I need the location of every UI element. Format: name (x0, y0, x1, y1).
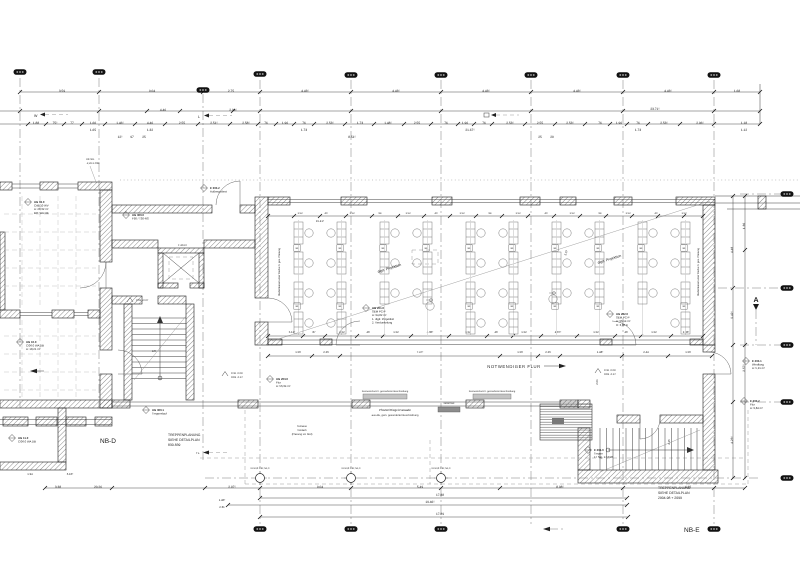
chair (649, 229, 657, 237)
annotation-text: FFB -0.08 (604, 369, 616, 372)
room-stamp-line: A: 18,21 m² (26, 347, 41, 351)
dim-value: 4.46 (160, 108, 166, 112)
dim-value: 1.36 (742, 223, 746, 229)
dim-value: 12⁵ (118, 135, 124, 139)
chair (649, 259, 657, 267)
dim-value: 21.67⁵ (465, 128, 475, 132)
dim-value: 2.96⁵ (229, 108, 237, 112)
dim-value: 2.53⁵ (660, 121, 668, 125)
chair (499, 259, 507, 267)
dim-value: 5.07 (563, 249, 569, 256)
dim-value: 94 (379, 212, 382, 215)
column-circle (437, 474, 446, 483)
dim-value: 2.55 (414, 121, 420, 125)
dim-value: 1.32 (147, 128, 153, 132)
dim-value: 4.46 (147, 121, 153, 125)
dim-value: 6.10⁵ (67, 472, 74, 476)
dim-value: 2.01 (595, 379, 599, 385)
chair (327, 229, 335, 237)
annotation-text: Medienkanal unter Decke lt. ges. Planung (697, 247, 700, 296)
dim-value: 17.89 (436, 512, 444, 516)
chair (671, 259, 679, 267)
chair (305, 259, 313, 267)
section-letter: A (753, 297, 758, 304)
room-stamp-line: Außenpodest (210, 190, 227, 194)
elevator-shaft (158, 248, 204, 288)
chair (563, 289, 571, 297)
dim-value: 1.73 (635, 128, 641, 132)
dim-value: 1.50 (517, 350, 523, 354)
annotation-text: UK Stz. (86, 158, 95, 161)
dim-value: 1.52 (515, 212, 521, 215)
dim-value: 1.52 (569, 212, 575, 215)
dim-value: 3.38 (55, 485, 61, 489)
dim-value: 1.50 (295, 350, 301, 354)
seminar-desks (294, 220, 690, 336)
dim-value: 15.41⁵ (316, 219, 324, 223)
column-label: FLSt Ø 139,7x4,0 (342, 467, 361, 470)
chair (477, 319, 485, 327)
dim-value: 1.88 (33, 121, 39, 125)
dim-value: 1.65 (90, 128, 96, 132)
dim-value: 1.52 (349, 212, 355, 215)
annotation-text: Terrasse (297, 425, 308, 428)
stair-note-line: TREPPENPLANUNG (658, 486, 691, 490)
annotation-text: Pfosten/Riegel-Fassade (379, 408, 411, 412)
dim-value: 76 (264, 121, 268, 125)
dim-value: 1.50 (685, 350, 691, 354)
dim-value: 20 (550, 135, 554, 139)
chair (391, 229, 399, 237)
dim-value: 40 (545, 212, 548, 215)
annotation-text: Gitterrost (444, 402, 455, 405)
chair (671, 229, 679, 237)
chair (585, 259, 593, 267)
dim-value: 40 (624, 330, 628, 334)
dim-value: 5.49 (417, 485, 423, 489)
annotation-text: W (34, 114, 38, 118)
dim-value: 2.97⁵ (228, 485, 236, 489)
annotation-text: aus Alu, gem. gesonderter Beschreibung (372, 414, 419, 417)
dim-value: 4.07⁵ (555, 330, 562, 334)
dim-value: 4.15 (667, 439, 671, 445)
dim-value: 1.96 (462, 121, 468, 125)
stair-note-line: 2904-98 + 2099 (658, 496, 682, 500)
room-stamp-line: A: 9,84 m² (750, 406, 763, 410)
chair (477, 289, 485, 297)
dim-value: 40 (655, 212, 658, 215)
dim-value: 1.52 (297, 212, 303, 215)
annotation-text: (Planung LH Süd) (292, 433, 313, 436)
dim-value: 1.73 (357, 121, 363, 125)
dim-value: 20.26 (94, 485, 102, 489)
annotation-text: FFB -0.08 (231, 372, 243, 375)
room-stamp-line: BO: WA DB (34, 211, 49, 215)
dim-value: 2.55 (179, 121, 185, 125)
dim-value: 3.59 (59, 89, 65, 93)
canopy-outline (120, 180, 800, 484)
dim-value: 4.43⁵ (573, 89, 581, 93)
dim-value: 4.43⁵ (392, 89, 400, 93)
annotation-text: RFB -0.37 (231, 376, 243, 379)
chair (585, 229, 593, 237)
dim-value: 23.71⁵ (650, 107, 660, 111)
dim-value: 9.04 (149, 89, 155, 93)
dim-value: 1.12 (741, 128, 747, 132)
room-stamps: UG 03.0C4B.10 WVA: 28,32 m²BO: WA DBUG 1… (9, 185, 765, 460)
label-corridor: NOTWENDIGER FLUR (487, 364, 541, 369)
chair (499, 319, 507, 327)
chair (563, 229, 571, 237)
column-circle (347, 474, 356, 483)
grating-area (540, 404, 592, 440)
floor-tags: 8484848484848484848484848484848484 (294, 245, 687, 309)
drawing-svg: A NB-D NB-E NOTWENDIGER FLUR 3.599.042.7… (0, 0, 800, 572)
chair (499, 229, 507, 237)
room-stamp-line: A: 56,34 m² (276, 384, 291, 388)
column-circle (256, 474, 265, 483)
stair-note-line: SIEHE DETAILPLAN (658, 491, 690, 495)
dim-value: 1.52 (459, 212, 465, 215)
dim-value: 2.26 (545, 350, 551, 354)
dim-value: 2.31 (219, 505, 225, 509)
annotation-text: digit. Projektion (597, 254, 622, 265)
dim-value: 1.52 (681, 212, 687, 215)
chair (671, 319, 679, 327)
room-stamp-line: F90 / T30-RS (132, 217, 149, 221)
chair (413, 289, 421, 297)
dim-value: 1.52 (339, 330, 345, 334)
chair (413, 259, 421, 267)
dim-value: 7.47⁵ (417, 350, 424, 354)
dim-value: 76 (598, 121, 602, 125)
dim-value: 1.52 (521, 330, 527, 334)
chair (413, 229, 421, 237)
dim-value: 40 (325, 212, 328, 215)
walls-existing-building (0, 182, 112, 470)
chair (305, 319, 313, 327)
chair (563, 259, 571, 267)
stair-note-line: 830-839 (168, 443, 181, 447)
dim-value: 87 (312, 330, 316, 334)
stairs-nbe (600, 428, 700, 472)
dim-value: 97 (130, 135, 134, 139)
dim-value: 94 (489, 212, 492, 215)
dim-value: 4.23⁵ (730, 436, 734, 444)
dim-value: 2.51⁵ (210, 121, 218, 125)
dim-value: 2.44 (643, 350, 649, 354)
chair (585, 289, 593, 297)
room-stamp-line: Treppenlauf (152, 412, 167, 416)
annotation-text: Vordach (297, 429, 307, 432)
dim-value: 76 (444, 121, 448, 125)
dim-value: 1.52 (651, 330, 657, 334)
dim-value: 2.75 (228, 89, 234, 93)
dim-value: 76 (302, 121, 306, 125)
dimension-chains (0, 90, 762, 519)
dim-value: 1.94 (27, 472, 33, 476)
dim-value: 4.43⁵ (482, 89, 490, 93)
label-nbe: NB-E (684, 527, 700, 534)
facade-columns: FLSt Ø 139,7x4,0FLSt Ø 139,7x4,0FLSt Ø 1… (251, 467, 451, 485)
dim-value: 1.46⁵ (116, 121, 124, 125)
ceiling-grid-dashed (4, 196, 96, 398)
dim-value: 4.48 (730, 247, 734, 253)
room-stamp-line: 2. Verdunkelung (372, 320, 393, 324)
annotation-text: Sonnenschutz lt. gesonderter Beschreibun… (469, 390, 516, 393)
label-nbd: NB-D (100, 438, 116, 445)
chair (305, 289, 313, 297)
annotation-text: digit. Projektion (377, 263, 402, 274)
dim-value: 1.18 (741, 121, 747, 125)
dim-value: 1.40⁵ (219, 498, 226, 502)
column-label: FLSt Ø 139,7x4,0 (251, 467, 270, 470)
chair (649, 289, 657, 297)
dim-value: 19.46⁵ (425, 500, 435, 504)
stair-note-line: TREPPENPLANUNG (168, 433, 201, 437)
dim-value: 9.04 (317, 485, 323, 489)
annotation-text: RFB -0.37 (604, 373, 616, 376)
dim-value: 2.58⁵ (242, 121, 250, 125)
dim-value: 77 (70, 121, 74, 125)
dim-value: 40 (366, 330, 370, 334)
room-stamp-line: C/06.0 WA DB (18, 440, 36, 444)
section-marker-a: A (753, 297, 759, 310)
chair (327, 259, 335, 267)
annotation-text: Medienkanal unter Decke lt. ges. Planung (278, 247, 281, 296)
dim-value: 2.96⁵ (696, 121, 704, 125)
walls-connector (112, 205, 255, 400)
dim-value: 2.53⁵ (506, 121, 514, 125)
site-lines-right (715, 84, 800, 209)
dim-value: 2.86⁵ (683, 330, 690, 334)
annotation-text: F 403.0 (178, 244, 187, 247)
room-stamp-line: A: 5,21 m² (752, 366, 765, 370)
dim-value: 1.96 (616, 121, 622, 125)
dim-value: 1.48⁵ (384, 121, 392, 125)
chair (305, 229, 313, 237)
dim-value: 1.60 (90, 121, 96, 125)
dim-value: 1.52 (393, 330, 399, 334)
dim-value: 4.43⁵ (664, 89, 672, 93)
walls-seminar-room (255, 197, 715, 470)
wheelchair-icon (549, 295, 557, 303)
annotation-text: PTB +0.07 (136, 299, 149, 302)
dim-value: 8.98⁵ (556, 485, 564, 489)
dim-value: 2.53⁵ (326, 121, 334, 125)
dim-value: 2.57⁵ (742, 364, 746, 372)
chair (391, 289, 399, 297)
annotation-text: Sonnenschutz lt. gesonderter Beschreibun… (362, 390, 409, 393)
dim-value: 9.42⁵ (730, 311, 734, 319)
chair (671, 289, 679, 297)
column-label: FLSt Ø 139,7x4,0 (432, 467, 451, 470)
dim-value: 1.96 (282, 121, 288, 125)
chair (477, 259, 485, 267)
door-arcs (80, 181, 731, 439)
wheelchair-icon (426, 302, 434, 310)
dim-value: 94 (599, 212, 602, 215)
stair-notes: TREPPENPLANUNGSIEHE DETAILPLAN830-839TRE… (168, 433, 691, 500)
annotation-text: L (198, 115, 200, 119)
stairs-nbd (132, 316, 186, 380)
chair (499, 289, 507, 297)
room-stamp-line: 17 Stg. 17,6/28 (594, 455, 613, 459)
dim-value: 40 (435, 212, 438, 215)
dim-value: 2.55 (537, 121, 543, 125)
dim-value: 25 (538, 135, 542, 139)
room-stamp-line: H: 3,06 m (616, 323, 629, 327)
chair (327, 289, 335, 297)
dim-value: 1.52 (625, 212, 631, 215)
dim-value: 2.53⁵ (566, 121, 574, 125)
dim-value: 75⁵ (53, 121, 59, 125)
dim-value: 25 (142, 135, 146, 139)
floor-plan-sheet: A NB-D NB-E NOTWENDIGER FLUR 3.599.042.7… (0, 0, 800, 572)
annotation-text: TL. (196, 451, 200, 455)
dim-value: 5.12⁵ (289, 330, 296, 334)
dim-value: 1.52 (405, 212, 411, 215)
dim-value: 2.26 (323, 350, 329, 354)
annotation-text: -2,26 ü.OKF (86, 162, 101, 165)
dim-value: 1.73 (301, 128, 307, 132)
wheelchair-symbols (426, 292, 557, 311)
dim-value: 4.43⁵ (301, 89, 309, 93)
dim-value: 1.48⁵ (597, 350, 604, 354)
chair (477, 229, 485, 237)
stair-note-line: SIEHE DETAILPLAN (168, 438, 200, 442)
dim-value: 76 (636, 121, 640, 125)
dim-value: 17.88 (436, 493, 444, 497)
dim-value: 40 (494, 330, 498, 334)
dim-value: 8.51⁵ (348, 135, 356, 139)
annotation-arrows (30, 113, 601, 532)
dim-value: 1.68 (734, 89, 740, 93)
dim-value: 76 (482, 121, 486, 125)
dim-value: 1.52 (593, 330, 599, 334)
